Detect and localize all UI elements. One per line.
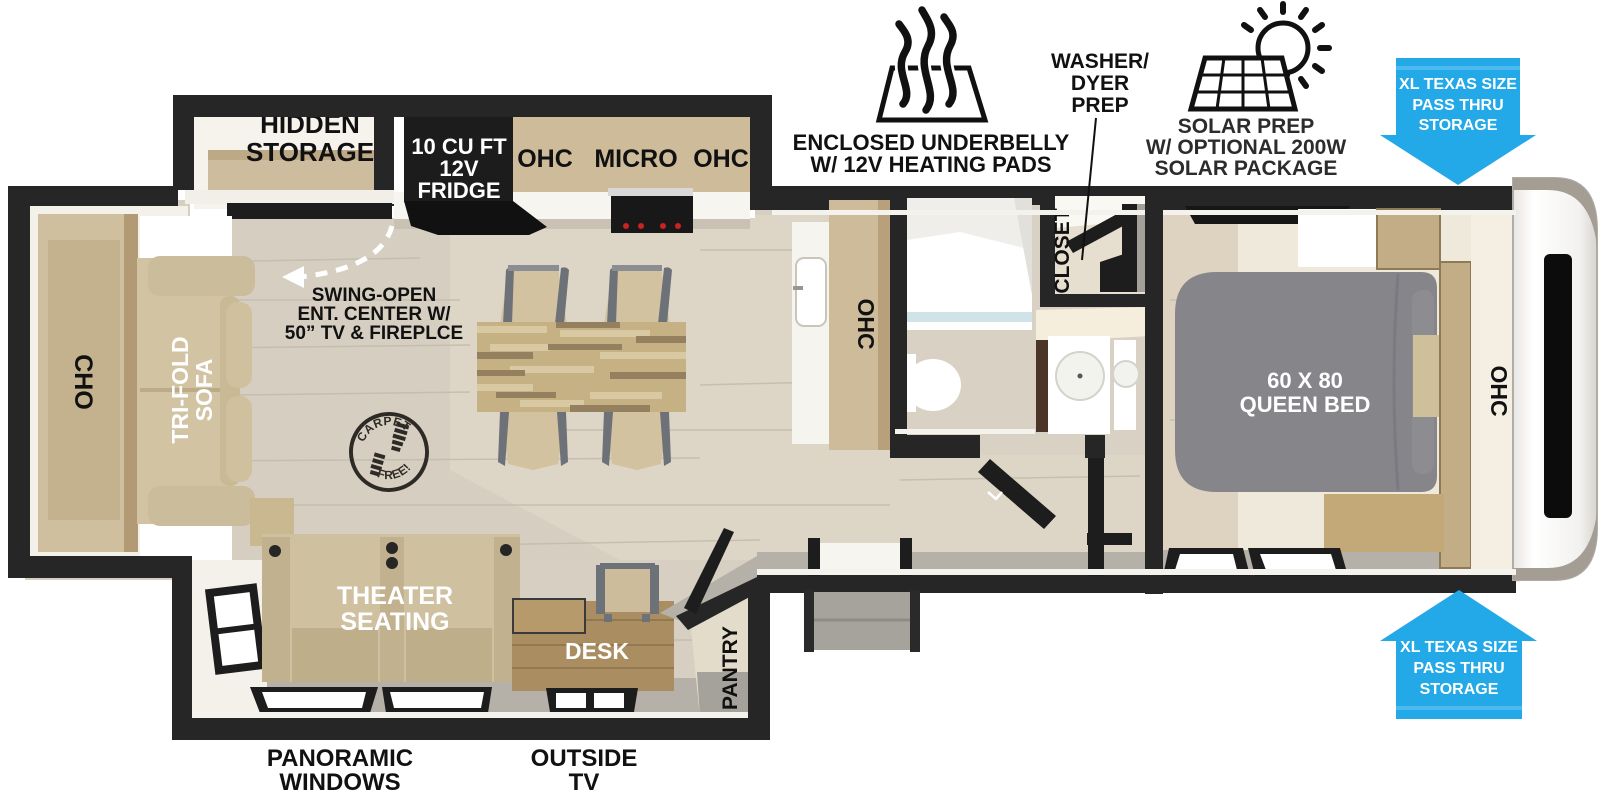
svg-text:50” TV & FIREPLCE: 50” TV & FIREPLCE (285, 323, 463, 344)
svg-text:PASS THRU: PASS THRU (1413, 660, 1504, 677)
svg-text:OHC: OHC (693, 145, 749, 173)
svg-text:OHC: OHC (517, 145, 573, 173)
svg-text:W/ 12V HEATING PADS: W/ 12V HEATING PADS (810, 152, 1051, 177)
svg-text:MICRO: MICRO (594, 145, 677, 173)
svg-text:CHO: CHO (69, 354, 97, 410)
svg-text:DESK: DESK (565, 638, 629, 664)
svg-text:FRIDGE: FRIDGE (417, 178, 500, 203)
svg-text:TRI-FOLD: TRI-FOLD (167, 336, 193, 443)
svg-text:SEATING: SEATING (340, 608, 449, 636)
svg-text:W/ OPTIONAL 200W: W/ OPTIONAL 200W (1146, 136, 1346, 159)
svg-text:PANTRY: PANTRY (719, 626, 742, 710)
svg-text:PREP: PREP (1071, 94, 1128, 117)
svg-text:PANORAMIC: PANORAMIC (267, 745, 413, 772)
svg-text:WASHER/: WASHER/ (1051, 50, 1149, 73)
svg-text:OUTSIDE: OUTSIDE (531, 745, 638, 772)
svg-text:THEATER: THEATER (337, 582, 453, 610)
svg-text:XL TEXAS SIZE: XL TEXAS SIZE (1399, 76, 1517, 93)
svg-text:XL TEXAS SIZE: XL TEXAS SIZE (1400, 639, 1518, 656)
svg-text:60 X 80: 60 X 80 (1267, 368, 1343, 393)
svg-text:PASS THRU: PASS THRU (1412, 97, 1503, 114)
svg-text:SOLAR PACKAGE: SOLAR PACKAGE (1155, 157, 1338, 180)
svg-text:SOFA: SOFA (191, 359, 217, 422)
svg-text:DYER: DYER (1071, 72, 1129, 95)
svg-text:TV: TV (569, 769, 600, 791)
svg-text:STORAGE: STORAGE (1419, 117, 1498, 134)
svg-text:WINDOWS: WINDOWS (279, 769, 400, 791)
svg-text:OHC: OHC (853, 298, 879, 349)
svg-text:STORAGE: STORAGE (1420, 681, 1499, 698)
svg-text:OHC: OHC (1486, 365, 1512, 416)
svg-text:ENT. CENTER W/: ENT. CENTER W/ (297, 304, 451, 325)
svg-text:QUEEN BED: QUEEN BED (1240, 392, 1371, 417)
svg-text:CLOSET: CLOSET (1051, 208, 1074, 293)
svg-text:SWING-OPEN: SWING-OPEN (312, 285, 437, 306)
svg-text:STORAGE: STORAGE (246, 137, 374, 167)
svg-text:SOLAR PREP: SOLAR PREP (1178, 115, 1315, 138)
